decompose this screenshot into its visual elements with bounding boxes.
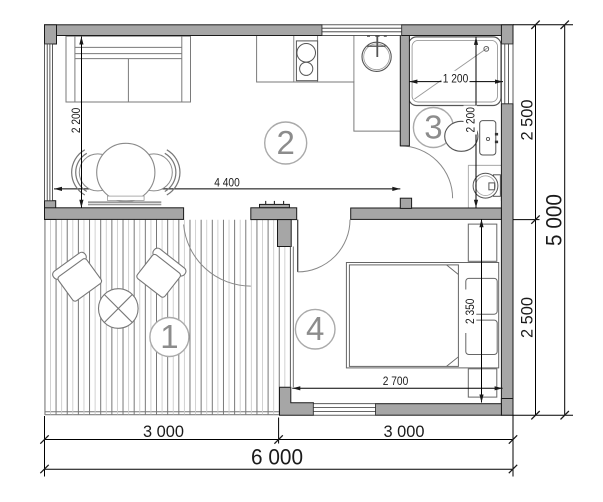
svg-text:1 200: 1 200 — [443, 71, 469, 85]
svg-text:6 000: 6 000 — [251, 445, 303, 470]
svg-text:2 200: 2 200 — [463, 107, 477, 133]
svg-text:2 700: 2 700 — [383, 374, 409, 388]
svg-text:2 350: 2 350 — [463, 298, 477, 324]
svg-text:3 000: 3 000 — [384, 422, 425, 441]
svg-text:2 500: 2 500 — [517, 297, 536, 338]
svg-text:5 000: 5 000 — [542, 194, 567, 246]
svg-text:4 400: 4 400 — [214, 175, 240, 189]
svg-text:2 200: 2 200 — [69, 108, 83, 134]
svg-text:4: 4 — [306, 310, 324, 347]
svg-text:2 500: 2 500 — [517, 100, 536, 141]
svg-text:2: 2 — [277, 124, 295, 161]
svg-text:3: 3 — [424, 108, 442, 145]
svg-text:3 000: 3 000 — [143, 422, 184, 441]
svg-text:1: 1 — [160, 318, 178, 355]
